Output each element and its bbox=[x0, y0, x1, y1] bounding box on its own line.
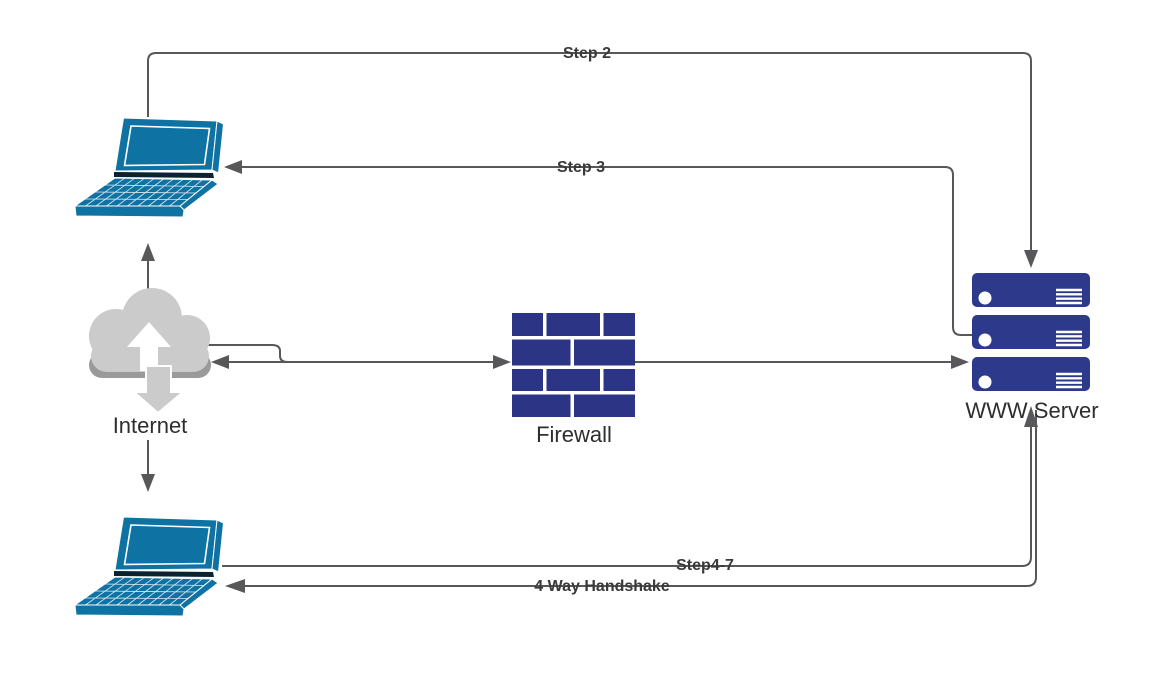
server-unit-1 bbox=[972, 273, 1090, 307]
edge-step3 bbox=[224, 160, 975, 335]
server-stack-icon bbox=[972, 273, 1090, 391]
server-label: WWW Server bbox=[965, 398, 1098, 423]
firewall-label: Firewall bbox=[536, 422, 612, 447]
arrowhead-into-server-left bbox=[951, 355, 969, 369]
edge-step47-line bbox=[222, 427, 1031, 566]
firewall-brick bbox=[547, 313, 601, 336]
edge-step3-line bbox=[242, 167, 975, 335]
edge-step2-line bbox=[148, 53, 1031, 250]
firewall-brick bbox=[512, 340, 571, 366]
firewall-brick bbox=[512, 395, 571, 418]
firewall-brick bbox=[574, 340, 635, 366]
internet-cloud-icon bbox=[89, 288, 211, 413]
firewall-brick bbox=[604, 369, 636, 391]
diagram-canvas: Step 2 Step 3 Step4-7 4 Way Handshake In… bbox=[0, 0, 1163, 695]
laptop-client-top bbox=[75, 118, 224, 217]
arrowhead-handshake-into-client-bottom bbox=[225, 579, 245, 593]
edge-firewall-to-server bbox=[635, 355, 969, 369]
edge-handshake-line bbox=[245, 410, 1036, 586]
firewall-icon bbox=[512, 313, 635, 417]
edge-step2-label: Step 2 bbox=[563, 45, 611, 62]
server-unit-3 bbox=[972, 357, 1090, 391]
laptop-client-bottom bbox=[75, 517, 224, 616]
firewall-brick bbox=[547, 369, 601, 391]
arrowhead-into-client-bottom bbox=[141, 474, 155, 492]
edge-step47-label: Step4-7 bbox=[676, 557, 734, 574]
firewall-brick bbox=[574, 395, 635, 418]
arrowhead-into-internet bbox=[211, 355, 229, 369]
edge-step3-label: Step 3 bbox=[557, 159, 605, 176]
edge-internet-firewall bbox=[208, 345, 511, 369]
firewall-brick bbox=[512, 369, 543, 391]
arrowhead-into-client-top bbox=[141, 243, 155, 261]
network-diagram: Step 2 Step 3 Step4-7 4 Way Handshake In… bbox=[0, 0, 1163, 695]
internet-label: Internet bbox=[113, 413, 188, 438]
arrowhead-step3-into-client-top bbox=[224, 160, 242, 174]
edge-handshake-label: 4 Way Handshake bbox=[534, 578, 670, 595]
arrowhead-into-firewall bbox=[493, 355, 511, 369]
edge-step47 bbox=[222, 406, 1038, 566]
edge-internet-to-client-bottom bbox=[141, 440, 155, 492]
server-unit-2 bbox=[972, 315, 1090, 349]
firewall-brick bbox=[604, 313, 636, 336]
arrowhead-step2-into-server bbox=[1024, 250, 1038, 268]
firewall-brick bbox=[512, 313, 543, 336]
